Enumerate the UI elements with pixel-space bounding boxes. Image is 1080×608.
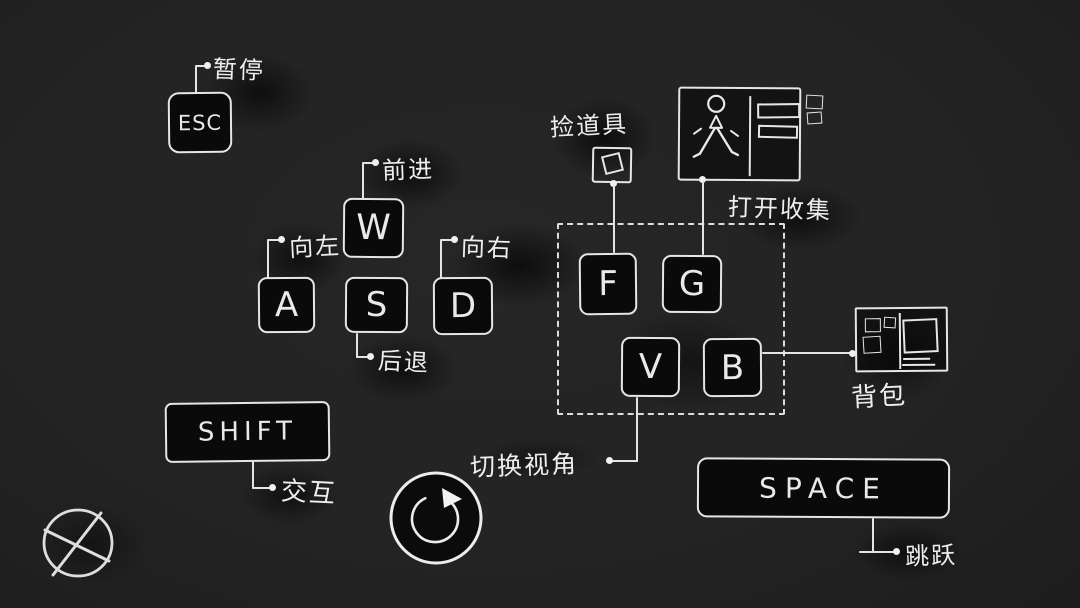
crossed-circle-icon[interactable] xyxy=(36,503,122,585)
stick-figure-icon xyxy=(686,92,747,178)
connector-line xyxy=(356,333,358,358)
key-space-label: SPACE xyxy=(759,471,888,505)
key-g-label: G xyxy=(679,264,706,304)
key-f-label: F xyxy=(598,264,618,304)
key-b-label: B xyxy=(721,347,745,387)
connector-dot xyxy=(278,236,285,243)
key-f: F xyxy=(579,253,638,316)
label-pick-item: 捡道具 xyxy=(549,104,629,143)
inventory-slot xyxy=(863,336,882,354)
label-interact: 交互 xyxy=(280,471,338,511)
key-d: D xyxy=(433,277,493,335)
connector-line xyxy=(362,163,364,199)
key-s-label: S xyxy=(366,285,388,325)
connector-line xyxy=(762,352,853,354)
circular-arrow-icon[interactable] xyxy=(388,470,484,566)
key-w: W xyxy=(343,198,405,259)
collection-tab-icon xyxy=(806,95,824,110)
key-s: S xyxy=(345,277,408,333)
key-v: V xyxy=(621,337,680,397)
connector-dot xyxy=(372,159,379,166)
label-backward: 后退 xyxy=(377,341,431,379)
key-b: B xyxy=(703,338,762,397)
controls-help-screen: ESC 暂停 W 前进 A 向左 S 后退 D 向右 SHIFT 交互 SPAC… xyxy=(0,0,1080,608)
preview-line xyxy=(902,364,935,366)
key-w-label: W xyxy=(356,208,391,248)
label-jump: 跳跃 xyxy=(904,535,957,572)
connector-line xyxy=(636,397,638,462)
label-right: 向右 xyxy=(460,227,513,264)
connector-dot xyxy=(451,236,458,243)
connector-line xyxy=(613,185,615,253)
key-a-label: A xyxy=(275,285,299,325)
key-v-label: V xyxy=(639,347,663,387)
connector-line xyxy=(195,66,197,93)
key-esc: ESC xyxy=(168,92,233,154)
panel-divider xyxy=(749,96,752,176)
inventory-slot xyxy=(865,318,881,332)
connector-line xyxy=(267,240,269,278)
connector-line xyxy=(612,460,638,462)
inventory-slot xyxy=(884,317,897,329)
backpack-grid-icon xyxy=(855,307,949,373)
key-shift-label: SHIFT xyxy=(198,416,297,447)
collection-list-bar xyxy=(757,103,800,118)
connector-dot xyxy=(269,484,276,491)
key-shift: SHIFT xyxy=(165,401,331,463)
label-forward: 前进 xyxy=(381,149,434,186)
label-backpack: 背包 xyxy=(850,375,908,415)
connector-dot xyxy=(367,353,374,360)
connector-dot xyxy=(204,62,211,69)
preview-line xyxy=(903,358,930,360)
label-open-collection: 打开收集 xyxy=(727,187,832,226)
label-pause: 暂停 xyxy=(212,49,265,86)
connector-line xyxy=(872,518,874,553)
collection-window-icon xyxy=(678,87,802,182)
connector-line xyxy=(702,181,704,255)
connector-dot xyxy=(606,457,613,464)
label-left: 向左 xyxy=(288,226,342,264)
key-d-label: D xyxy=(450,286,476,326)
connector-line xyxy=(252,461,254,489)
label-switch-view: 切换视角 xyxy=(469,444,578,484)
key-space: SPACE xyxy=(697,457,950,518)
connector-line xyxy=(440,240,442,278)
connector-dot xyxy=(893,548,900,555)
key-esc-label: ESC xyxy=(178,110,223,134)
key-a: A xyxy=(258,277,315,333)
key-g: G xyxy=(662,255,723,314)
collection-list-bar xyxy=(758,125,798,139)
collection-tab-icon xyxy=(807,111,823,124)
inventory-preview-box xyxy=(902,318,938,353)
panel-divider xyxy=(899,313,901,369)
